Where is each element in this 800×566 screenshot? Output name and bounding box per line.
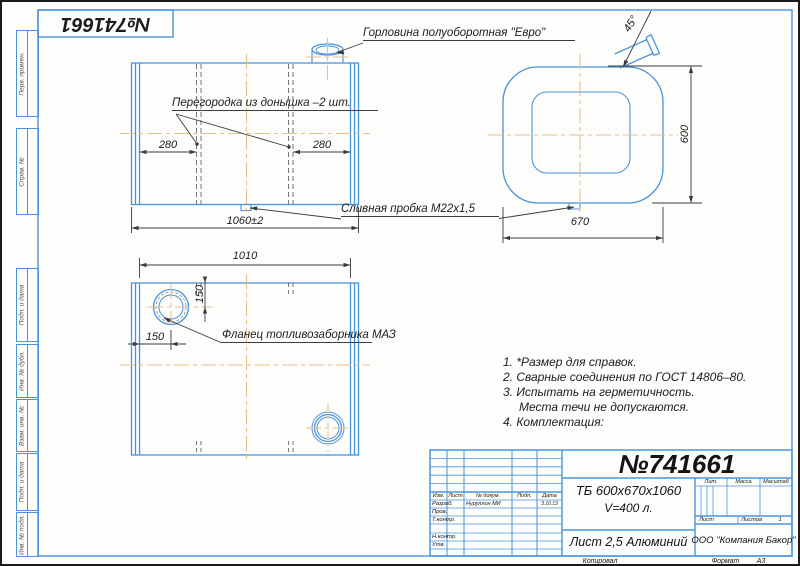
note-3b: Места течи не допускаются. bbox=[519, 400, 689, 414]
titleblock-lit: Лит. bbox=[695, 478, 727, 486]
margin-box-perv-primen: Перв. примен. bbox=[16, 30, 39, 117]
dim-150-vertical: 150 bbox=[194, 282, 206, 306]
margin-label: Взам. инв. № bbox=[17, 400, 28, 451]
margin-label: Подп. и дата bbox=[17, 269, 28, 341]
margin-box-sprav-no: Справ. № bbox=[16, 128, 39, 215]
titleblock-col-podp: Подп. bbox=[512, 492, 537, 500]
side-view bbox=[503, 34, 663, 209]
note-4: 4. Комплектация: bbox=[503, 415, 604, 429]
margin-box-podp-data-1: Подп. и дата bbox=[16, 268, 39, 342]
margin-label: Перв. примен. bbox=[17, 31, 28, 116]
titleblock-row-tkontr: Т.контр. bbox=[432, 516, 464, 524]
titleblock-col-izm: Изм. bbox=[430, 492, 447, 500]
top-view bbox=[132, 283, 359, 455]
titleblock-row-utv: Утв. bbox=[432, 541, 464, 549]
margin-label: Инв. № дубл. bbox=[17, 345, 28, 397]
dim-1010: 1010 bbox=[225, 250, 265, 262]
footer-format-label: Формат bbox=[703, 557, 748, 565]
annotation-drain-plug: Сливная пробка М22х1,5 bbox=[341, 203, 499, 217]
titleblock-listov: Листов bbox=[741, 516, 771, 524]
margin-box-inv-podl: Инв. № подл. bbox=[16, 512, 39, 557]
titleblock-doc-number: №741661 bbox=[562, 450, 792, 478]
dim-1060: 1060±2 bbox=[220, 215, 270, 227]
margin-box-podp-data-2: Подп. и дата bbox=[16, 453, 39, 511]
margin-label: Подп. и дата bbox=[17, 454, 28, 510]
titleblock-massa: Масса bbox=[727, 478, 760, 486]
footer-format-value: А3 bbox=[750, 557, 772, 565]
top-view-partition-marks bbox=[197, 283, 294, 455]
titleblock-col-doc: № докум. bbox=[464, 492, 512, 500]
margin-box-inv-dubl: Инв. № дубл. bbox=[16, 344, 39, 398]
margin-label: Справ. № bbox=[17, 129, 28, 214]
dim-670: 670 bbox=[565, 216, 595, 228]
titleblock-razrab-date: 3.10.13 bbox=[537, 500, 562, 508]
note-1: 1. *Размер для справок. bbox=[503, 355, 637, 369]
titleblock-masshtab: Масштаб bbox=[760, 478, 792, 486]
dimension-lines bbox=[128, 11, 702, 350]
annotation-partition: Перегородка из донышка –2 шт. bbox=[172, 97, 378, 111]
titleblock-listov-value: 1 bbox=[770, 516, 790, 524]
dim-280-right: 280 bbox=[308, 139, 336, 151]
titleblock-row-razrab: Разраб. bbox=[432, 500, 464, 508]
dim-280-left: 280 bbox=[154, 139, 182, 151]
titleblock-row-prov: Пров. bbox=[432, 508, 464, 516]
titleblock-company: ООО "Компания Бакор" bbox=[696, 527, 791, 553]
annotation-filler-neck: Горловина полуоборотная "Евро" bbox=[363, 27, 575, 41]
drawing-sheet: №741661 Перв. примен. Справ. № Подп. и д… bbox=[0, 0, 800, 566]
titleblock-designation: ТБ 600х670х1060 bbox=[562, 481, 695, 499]
margin-box-vzam-inv: Взам. инв. № bbox=[16, 399, 39, 452]
note-3: 3. Испытать на герметичность. bbox=[503, 385, 695, 399]
titleblock-material: Лист 2,5 Алюминий bbox=[562, 531, 695, 553]
dim-150-horizontal: 150 bbox=[141, 331, 169, 343]
titleblock-list: Лист bbox=[699, 516, 737, 524]
titleblock-row-nkontr: Н.контр. bbox=[432, 533, 464, 541]
footer-kopiroval: Копировал bbox=[565, 557, 635, 565]
titleblock-col-list: Лист bbox=[447, 492, 464, 500]
dim-600: 600 bbox=[679, 121, 691, 147]
titleblock-col-data: Дата bbox=[537, 492, 562, 500]
corner-stamp-number: №741661 bbox=[38, 10, 173, 37]
note-2: 2. Сварные соединения по ГОСТ 14806–80. bbox=[503, 370, 746, 384]
front-view bbox=[132, 44, 359, 211]
annotation-flange: Фланец топливозаборника МАЗ bbox=[222, 329, 372, 343]
titleblock-razrab-name: Нуруллин МИ bbox=[466, 500, 512, 508]
titleblock-volume: V=400 л. bbox=[562, 500, 695, 516]
arrowheads bbox=[132, 50, 694, 346]
margin-label: Инв. № подл. bbox=[17, 513, 28, 556]
